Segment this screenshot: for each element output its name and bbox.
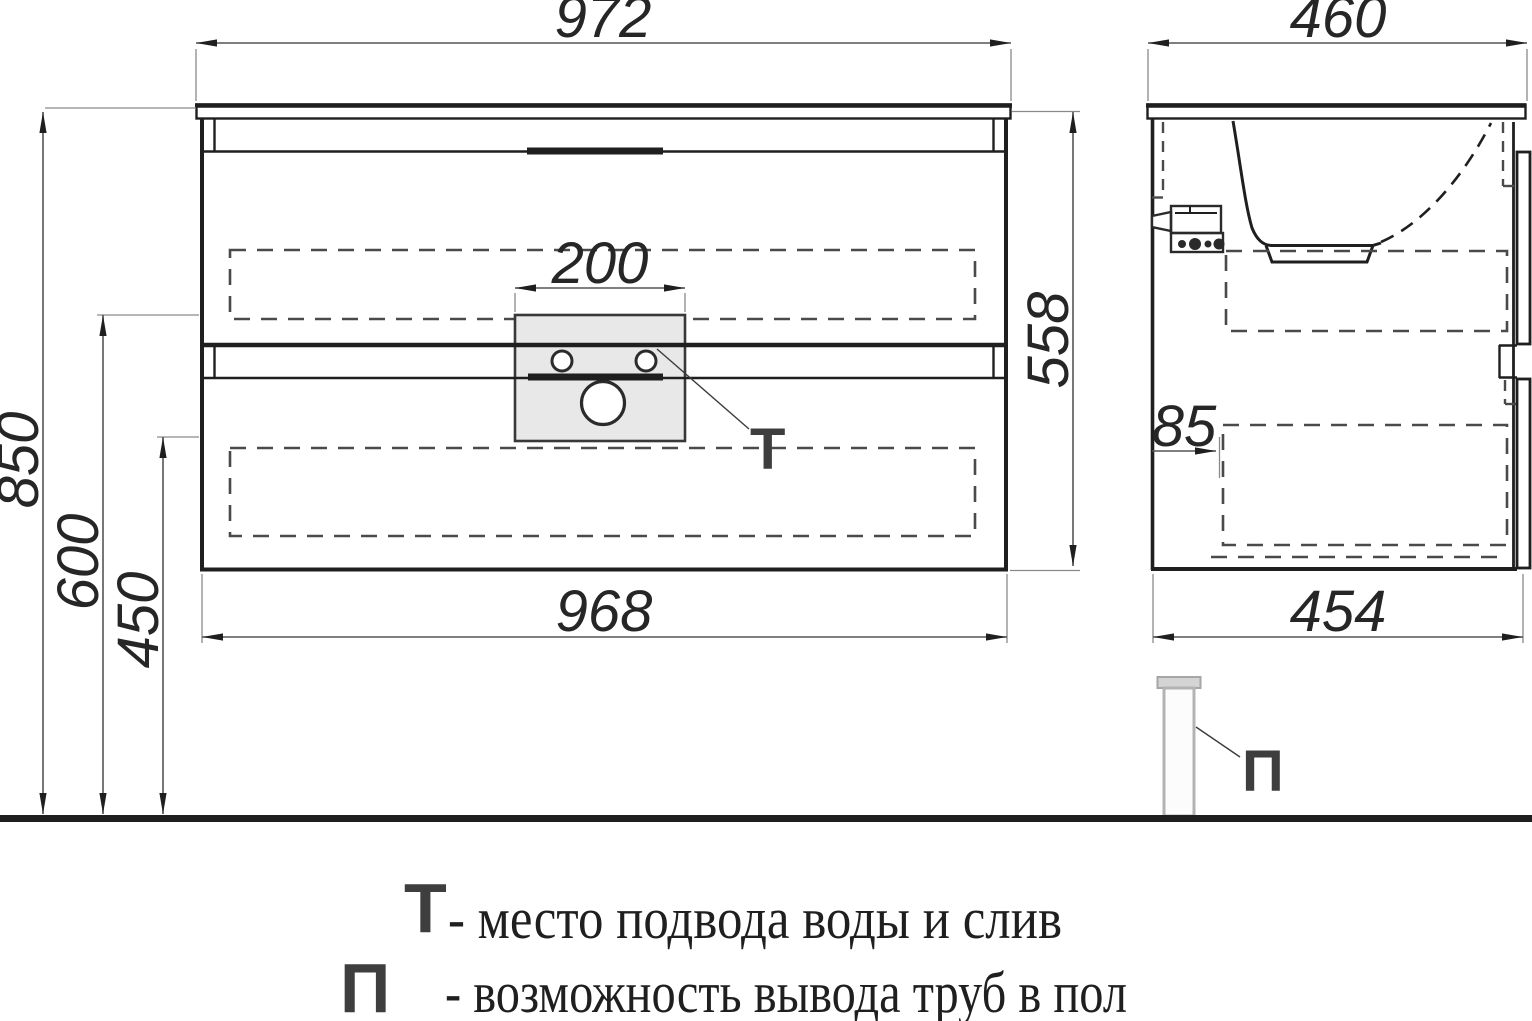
faucet-hole-right (636, 351, 656, 371)
legend-p-marker: П (340, 949, 390, 1021)
drain-hole (582, 382, 625, 425)
side-countertop (1146, 105, 1526, 119)
basin-dashed-curve (1381, 123, 1491, 242)
dim-value-850: 850 (0, 412, 51, 509)
dim-value-600: 600 (46, 514, 111, 611)
side-dim-460: 460 (1148, 0, 1527, 101)
front-countertop (195, 105, 1012, 119)
dim-value-460: 460 (1290, 0, 1387, 50)
front-dim-600: 600 (46, 315, 199, 814)
dim-value-450: 450 (106, 572, 171, 669)
front-dim-200: 200 (515, 231, 685, 312)
dim-value-85: 85 (1152, 394, 1217, 459)
p-marker: П (1242, 739, 1284, 804)
side-carcass (1151, 119, 1517, 570)
dim-value-558: 558 (1016, 292, 1081, 389)
faucet-hole-left (552, 351, 572, 371)
pipe-tube (1164, 688, 1194, 816)
slide-rivet (1205, 241, 1212, 248)
t-marker: Т (750, 417, 785, 482)
slide-rivet (1189, 238, 1201, 250)
legend-p-text: - возможность вывода труб в пол (445, 960, 1127, 1021)
front-dim-450: 450 (106, 437, 199, 814)
basin-profile (1233, 121, 1491, 262)
drawer1-front-profile (1517, 152, 1530, 344)
legend-t-marker: Т (404, 869, 447, 947)
drawer-slide-mechanism (1152, 206, 1225, 252)
front-dim-968: 968 (202, 574, 1007, 644)
side-drawer2-hidden-box (1223, 425, 1507, 545)
basin-solid-curve (1233, 121, 1373, 246)
drawer2-front-profile (1517, 379, 1530, 568)
front-dim-972: 972 (196, 0, 1011, 101)
slide-bracket (1171, 206, 1221, 233)
side-dim-454: 454 (1153, 574, 1523, 644)
slide-rivet (1178, 240, 1186, 248)
pipe-cap (1158, 677, 1201, 688)
legend-t-text: - место подвода воды и слив (448, 886, 1062, 951)
p-leader-line (1196, 727, 1240, 757)
front-drawer2-hidden-box (230, 448, 975, 536)
technical-drawing: 972 (0, 0, 1532, 1021)
dim-value-200: 200 (551, 231, 649, 296)
side-view: 460 (1146, 0, 1530, 644)
slide-rivet (1214, 239, 1225, 250)
side-dim-85: 85 (1152, 394, 1220, 478)
dim-value-972: 972 (555, 0, 652, 50)
front-view: 972 (0, 0, 1081, 814)
slide-wedge (1152, 212, 1171, 231)
front-dim-850: 850 (0, 108, 196, 814)
legend: Т - место подвода воды и слив П - возмож… (340, 869, 1127, 1021)
front-dim-558: 558 (1010, 112, 1081, 571)
dim-value-454: 454 (1290, 579, 1387, 644)
floor-pipe-callout: П (1158, 677, 1284, 816)
dim-value-968: 968 (556, 579, 653, 644)
